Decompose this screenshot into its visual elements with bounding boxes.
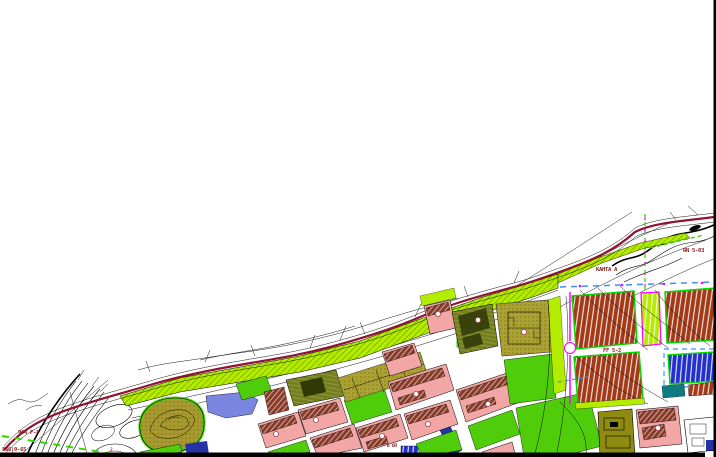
label-zone-right: KAHTA A [596,267,618,273]
hatched-development-parcels [558,214,716,409]
label-zone-top-right: RN 5-03 [683,248,704,254]
label-parcel-code-corner: 866|0-65 [2,447,26,453]
label-parcel-code-left: 904 F-8 [18,430,39,436]
label-zone-bottom-center: Б ОП [387,443,397,449]
label-zone-center-right: FF 5-2 [603,348,621,354]
water-tank [706,440,714,451]
map-canvas: 904 F-8 866|0-65 RN 5-03 KAHTA A FF 5-2 … [0,0,716,457]
zoning-map-drawing: 904 F-8 866|0-65 RN 5-03 KAHTA A FF 5-2 … [0,0,716,457]
blue-parcel [668,352,716,384]
industrial-blocks [598,406,716,457]
railway-track-bundle [18,370,110,457]
bottom-border-bar [0,453,705,457]
label-stadium-number: 2 [110,447,113,453]
